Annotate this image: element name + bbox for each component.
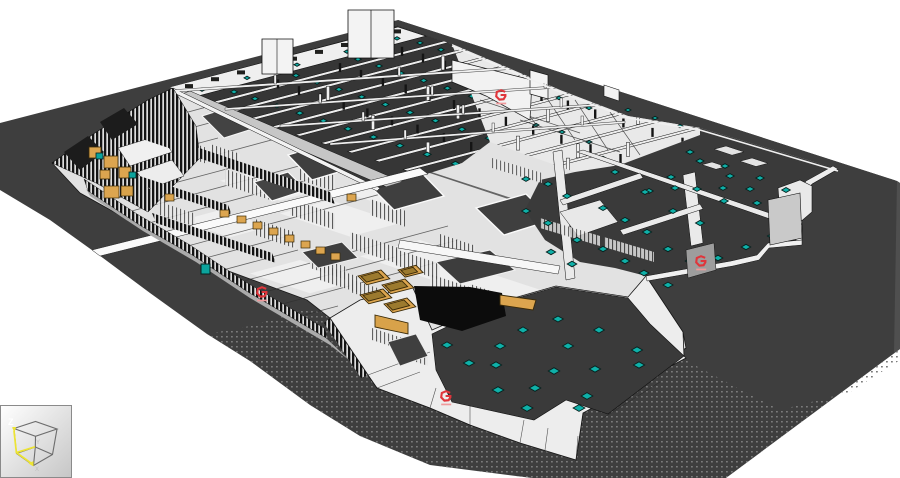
- svg-text:Y: Y: [36, 440, 40, 446]
- svg-text:Z: Z: [8, 417, 14, 427]
- svg-text:X: X: [35, 467, 39, 473]
